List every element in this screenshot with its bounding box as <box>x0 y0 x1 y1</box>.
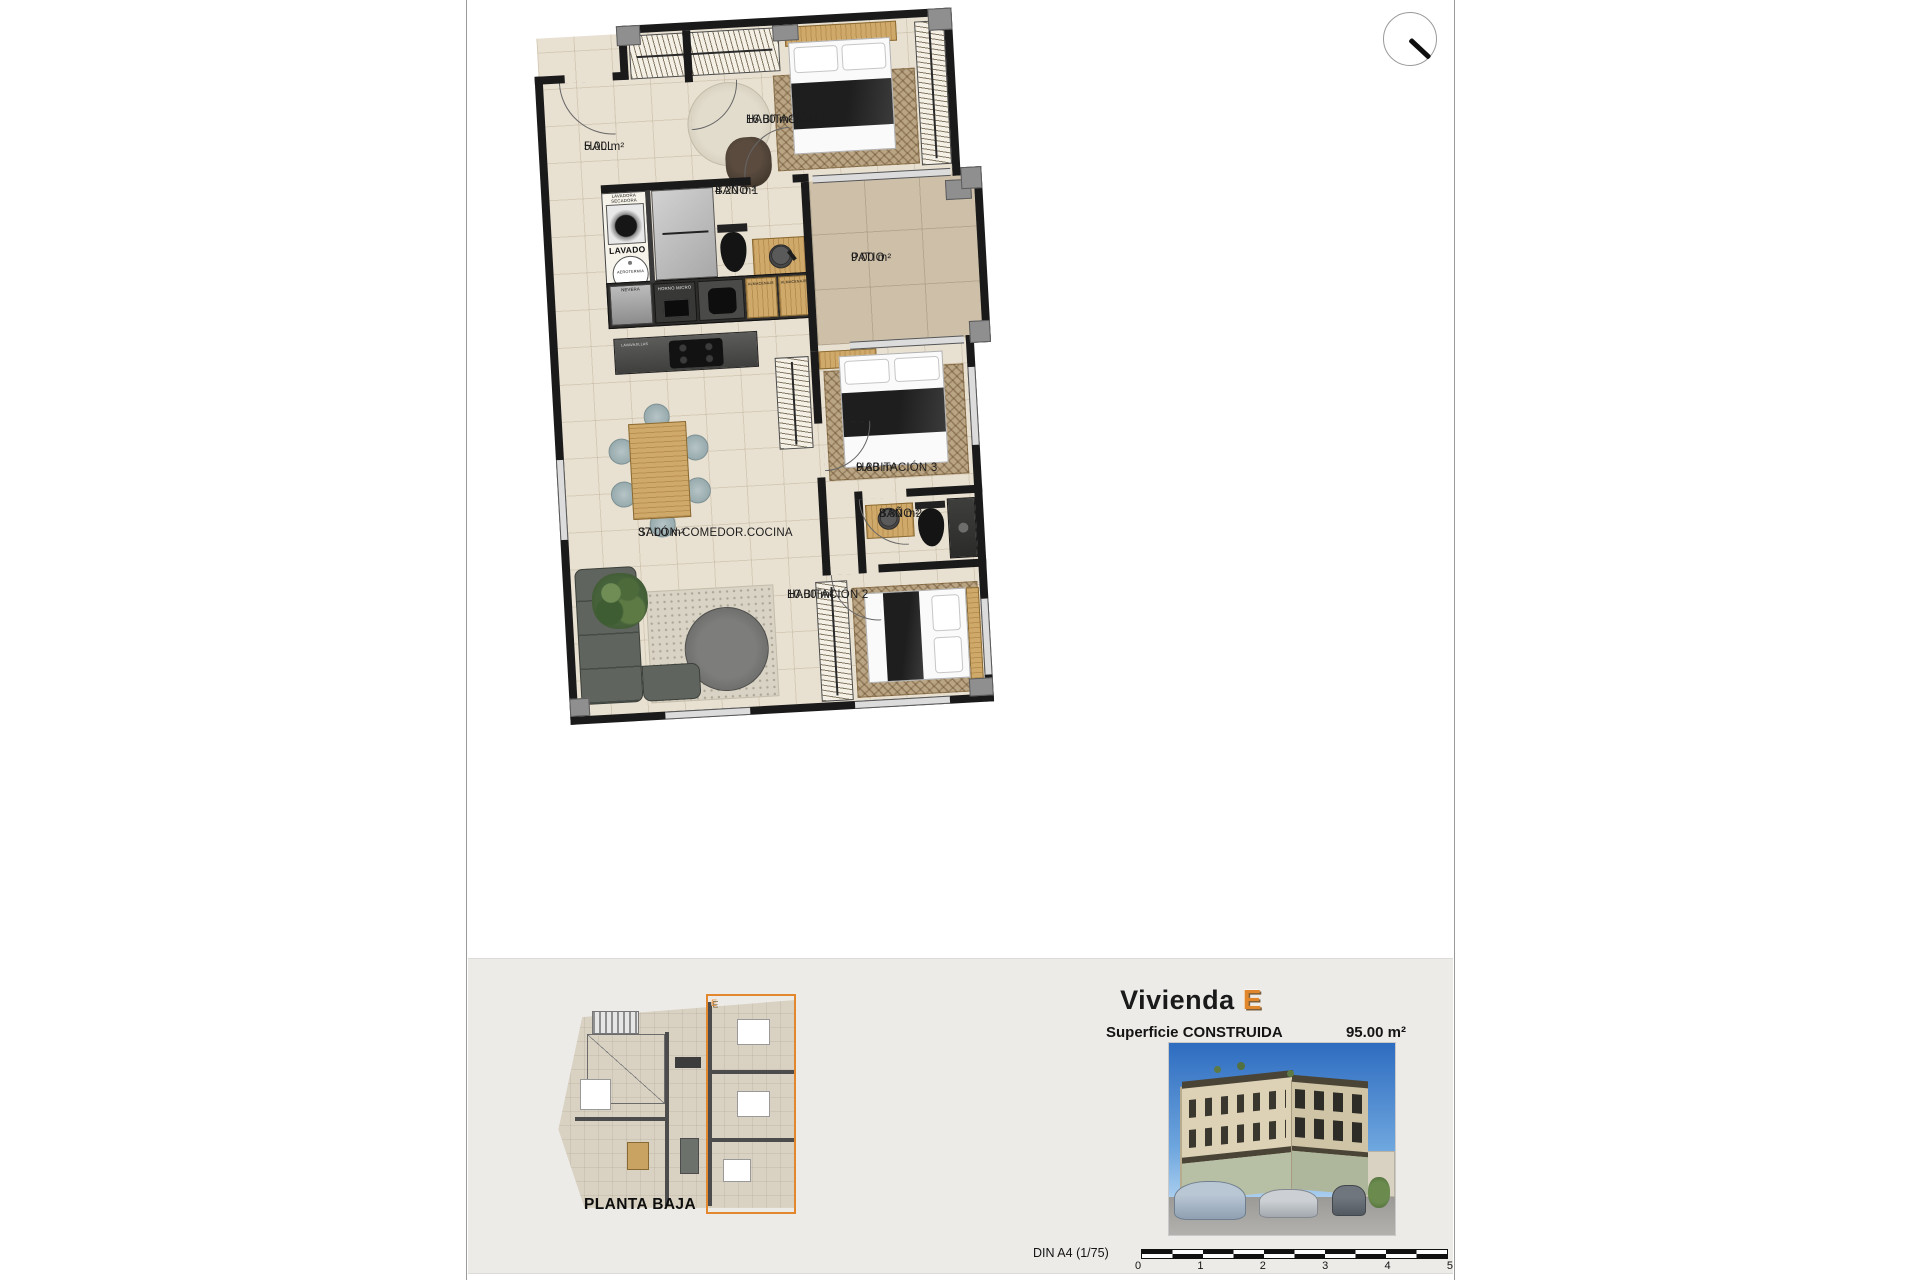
room-area: 9.00 m² <box>851 251 891 265</box>
kitchen-sink <box>708 287 737 315</box>
unit-title: Vivienda E <box>1071 984 1311 1016</box>
room-area: 9.80 m² <box>856 461 896 475</box>
photo-car <box>1259 1189 1318 1218</box>
photo-balcony-band <box>1295 1089 1365 1115</box>
cooktop <box>668 338 723 369</box>
wardrobe <box>775 356 814 450</box>
dining-table <box>628 421 691 520</box>
scale-bar <box>1141 1249 1448 1259</box>
room-area: 5.00 m² <box>584 140 624 154</box>
scale-tick: 5 <box>1447 1260 1453 1272</box>
room-area: 10.00 m² <box>787 588 834 602</box>
building-photo <box>1168 1042 1396 1236</box>
photo-roof-plant <box>1237 1062 1245 1070</box>
scale-label: DIN A4 (1/75) <box>1033 1246 1109 1260</box>
photo-balcony-band <box>1295 1118 1365 1144</box>
page: E LAVADORA SECADORA <box>0 0 1920 1280</box>
north-indicator-icon <box>1383 12 1437 66</box>
column <box>616 25 641 46</box>
overview-unit-highlight: E <box>706 994 796 1214</box>
overview-sofa <box>680 1138 699 1174</box>
sink-counter <box>697 279 745 322</box>
wardrobe <box>628 27 780 79</box>
scale-ticks: 0 1 2 3 4 5 <box>1135 1260 1453 1272</box>
overview-plan: E <box>556 998 794 1210</box>
scale-tick: 4 <box>1385 1260 1391 1272</box>
unit-title-letter: E <box>1243 984 1262 1015</box>
overview-wall <box>575 1117 668 1121</box>
column <box>969 677 994 696</box>
washing-machine <box>606 203 646 245</box>
photo-roof-plant <box>1287 1070 1294 1077</box>
overview-counter <box>675 1057 701 1068</box>
shower-drain <box>958 522 969 533</box>
scale-tick: 2 <box>1260 1260 1266 1272</box>
pillow <box>793 45 838 73</box>
oven-door <box>663 299 690 318</box>
room-area: 16.00 m² <box>746 113 793 127</box>
photo-cornice <box>1292 1075 1368 1089</box>
surface-row: Superficie CONSTRUIDA 95.00 m² <box>1106 1024 1406 1041</box>
surface-value: 95.00 m² <box>1346 1024 1406 1041</box>
unit-title-text: Vivienda <box>1120 985 1235 1015</box>
room-area: 4.20 m² <box>715 184 755 198</box>
vent-dot <box>628 261 632 265</box>
column <box>772 24 799 41</box>
column <box>960 166 982 189</box>
oven-micro: HORNO MICRO <box>653 281 697 323</box>
surface-label: Superficie CONSTRUIDA <box>1106 1024 1283 1041</box>
storage-label: ALMACENAJE <box>779 279 808 285</box>
wall <box>822 567 830 575</box>
sofa-chaise <box>642 663 702 702</box>
shower-channel <box>662 230 708 235</box>
wall <box>612 72 628 81</box>
pillow <box>894 356 940 382</box>
photo-roof-plant <box>1214 1066 1221 1073</box>
column <box>569 698 590 717</box>
storage-label: ALMACENAJE <box>746 281 775 287</box>
scale-bar-bottom <box>1142 1254 1447 1258</box>
scale-tick: 3 <box>1322 1260 1328 1272</box>
overview-stairs <box>592 1011 640 1034</box>
pillow <box>841 42 886 70</box>
storage-cabinet: ALMACENAJE <box>745 277 778 319</box>
photo-building-right-face <box>1291 1080 1368 1196</box>
photo-window-band <box>1189 1090 1287 1119</box>
dishwasher-label: LAVAVAJILLAS <box>618 342 652 348</box>
oven-micro-label: HORNO MICRO <box>655 285 693 292</box>
fridge-label: NEVERA <box>611 287 649 294</box>
fridge: NEVERA <box>609 284 653 326</box>
shower <box>651 187 718 280</box>
plan-sheet: E LAVADORA SECADORA <box>466 0 1455 1280</box>
photo-cornice <box>1182 1071 1293 1090</box>
scale-tick: 1 <box>1197 1260 1203 1272</box>
overview-plan-title: PLANTA BAJA <box>584 1196 696 1214</box>
room-area: 3.80 m² <box>879 507 919 521</box>
photo-car <box>1332 1185 1366 1216</box>
overview-unit-letter: E <box>711 998 717 1008</box>
shower <box>947 497 978 558</box>
photo-car <box>1174 1181 1246 1219</box>
photo-window-band <box>1189 1120 1287 1149</box>
pillow <box>844 359 890 385</box>
bed <box>788 37 896 155</box>
blanket <box>883 591 924 681</box>
scale-tick: 0 <box>1135 1260 1141 1272</box>
column <box>969 320 991 343</box>
aerotermia-label: AEROTERMIA <box>615 269 645 275</box>
overview-table <box>627 1142 648 1170</box>
room-area: 37.00 m² <box>638 526 685 540</box>
pillow <box>931 594 961 632</box>
north-needle-icon <box>1408 38 1431 60</box>
photo-bush <box>1368 1177 1391 1208</box>
pillow <box>933 636 963 674</box>
column <box>927 8 952 31</box>
overview-bed <box>580 1079 611 1111</box>
